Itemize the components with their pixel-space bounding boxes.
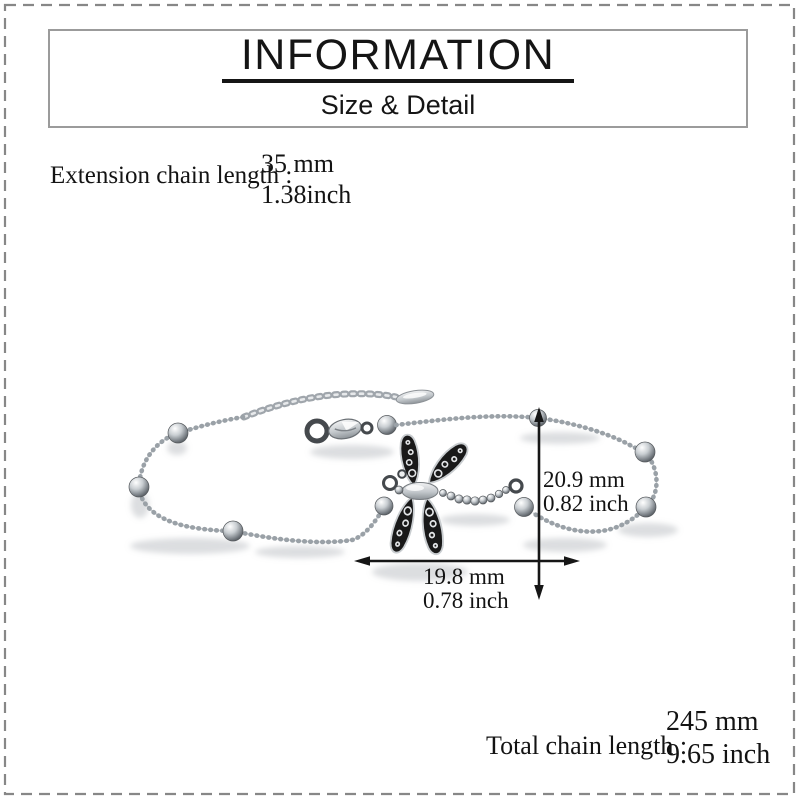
height-mm: 20.9 mm — [543, 468, 629, 492]
extension-tag — [395, 388, 435, 406]
total-chain-mm: 245 mm — [666, 705, 770, 738]
header-box: INFORMATION Size & Detail — [48, 29, 748, 128]
extension-chain-label: Extension chain length : — [50, 162, 292, 190]
bead — [168, 423, 188, 443]
height-dimension-label: 20.9 mm 0.82 inch — [543, 468, 629, 516]
bead — [635, 442, 655, 462]
dragonfly-wing — [418, 496, 446, 555]
total-chain-label: Total chain length : — [486, 731, 687, 761]
product-size-diagram: INFORMATION Size & Detail Extension chai… — [0, 0, 800, 800]
bead — [129, 477, 149, 497]
extension-chain-inch: 1.38inch — [261, 179, 351, 210]
total-chain-values: 245 mm 9.65 inch — [666, 705, 770, 771]
bead — [515, 498, 534, 517]
extension-chain-values: 35 mm 1.38inch — [261, 148, 351, 210]
extension-chain — [244, 388, 435, 417]
width-inch: 0.78 inch — [423, 589, 509, 613]
dragonfly-charm — [384, 434, 523, 556]
page-subtitle: Size & Detail — [50, 90, 746, 120]
dragonfly-wing — [398, 434, 423, 488]
extension-chain-mm: 35 mm — [261, 148, 351, 179]
lobster-clasp — [307, 416, 397, 442]
title-underline — [222, 79, 574, 83]
bead — [378, 416, 397, 435]
width-mm: 19.8 mm — [423, 565, 509, 589]
dragonfly-wing — [422, 439, 472, 490]
height-inch: 0.82 inch — [543, 492, 629, 516]
page-title: INFORMATION — [50, 33, 746, 78]
total-chain-inch: 9.65 inch — [666, 738, 770, 771]
bead — [375, 497, 393, 515]
dragonfly-tail — [440, 480, 523, 505]
bead — [223, 521, 243, 541]
bead — [636, 497, 656, 517]
width-dimension-label: 19.8 mm 0.78 inch — [423, 565, 509, 613]
